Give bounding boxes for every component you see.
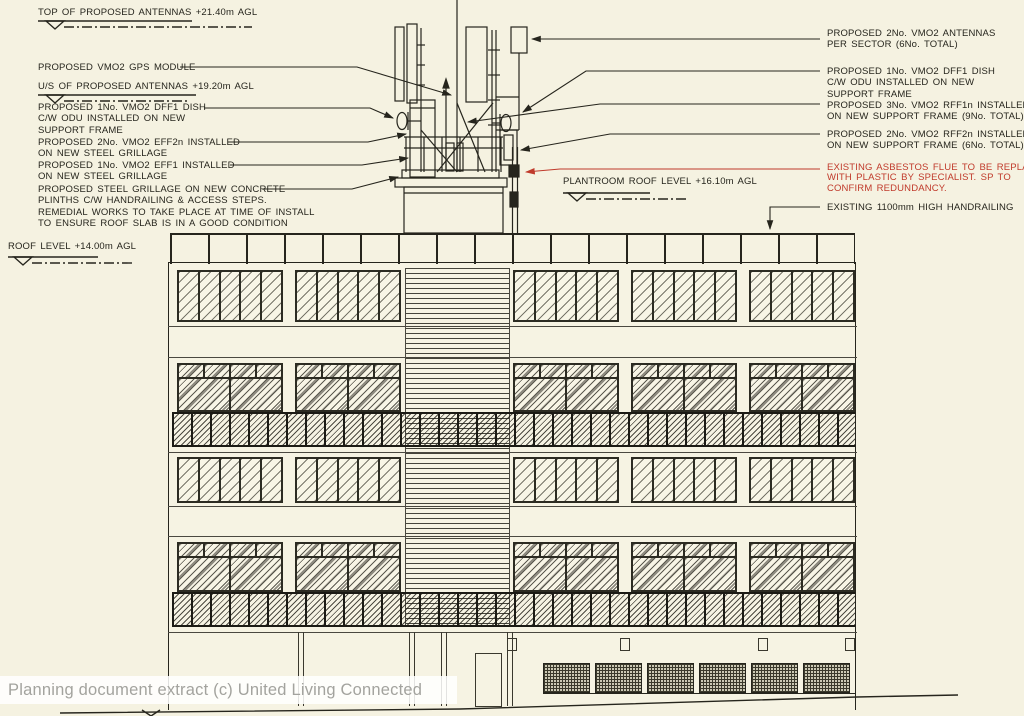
planning-drawing-canvas: TOP OF PROPOSED ANTENNAS +21.40m AGL PRO… (0, 0, 1024, 716)
asbestos-leader-line (526, 169, 820, 172)
level-marker-lines (8, 21, 688, 716)
drawing-linework (0, 0, 1024, 716)
copyright-watermark: Planning document extract (c) United Liv… (0, 676, 457, 704)
